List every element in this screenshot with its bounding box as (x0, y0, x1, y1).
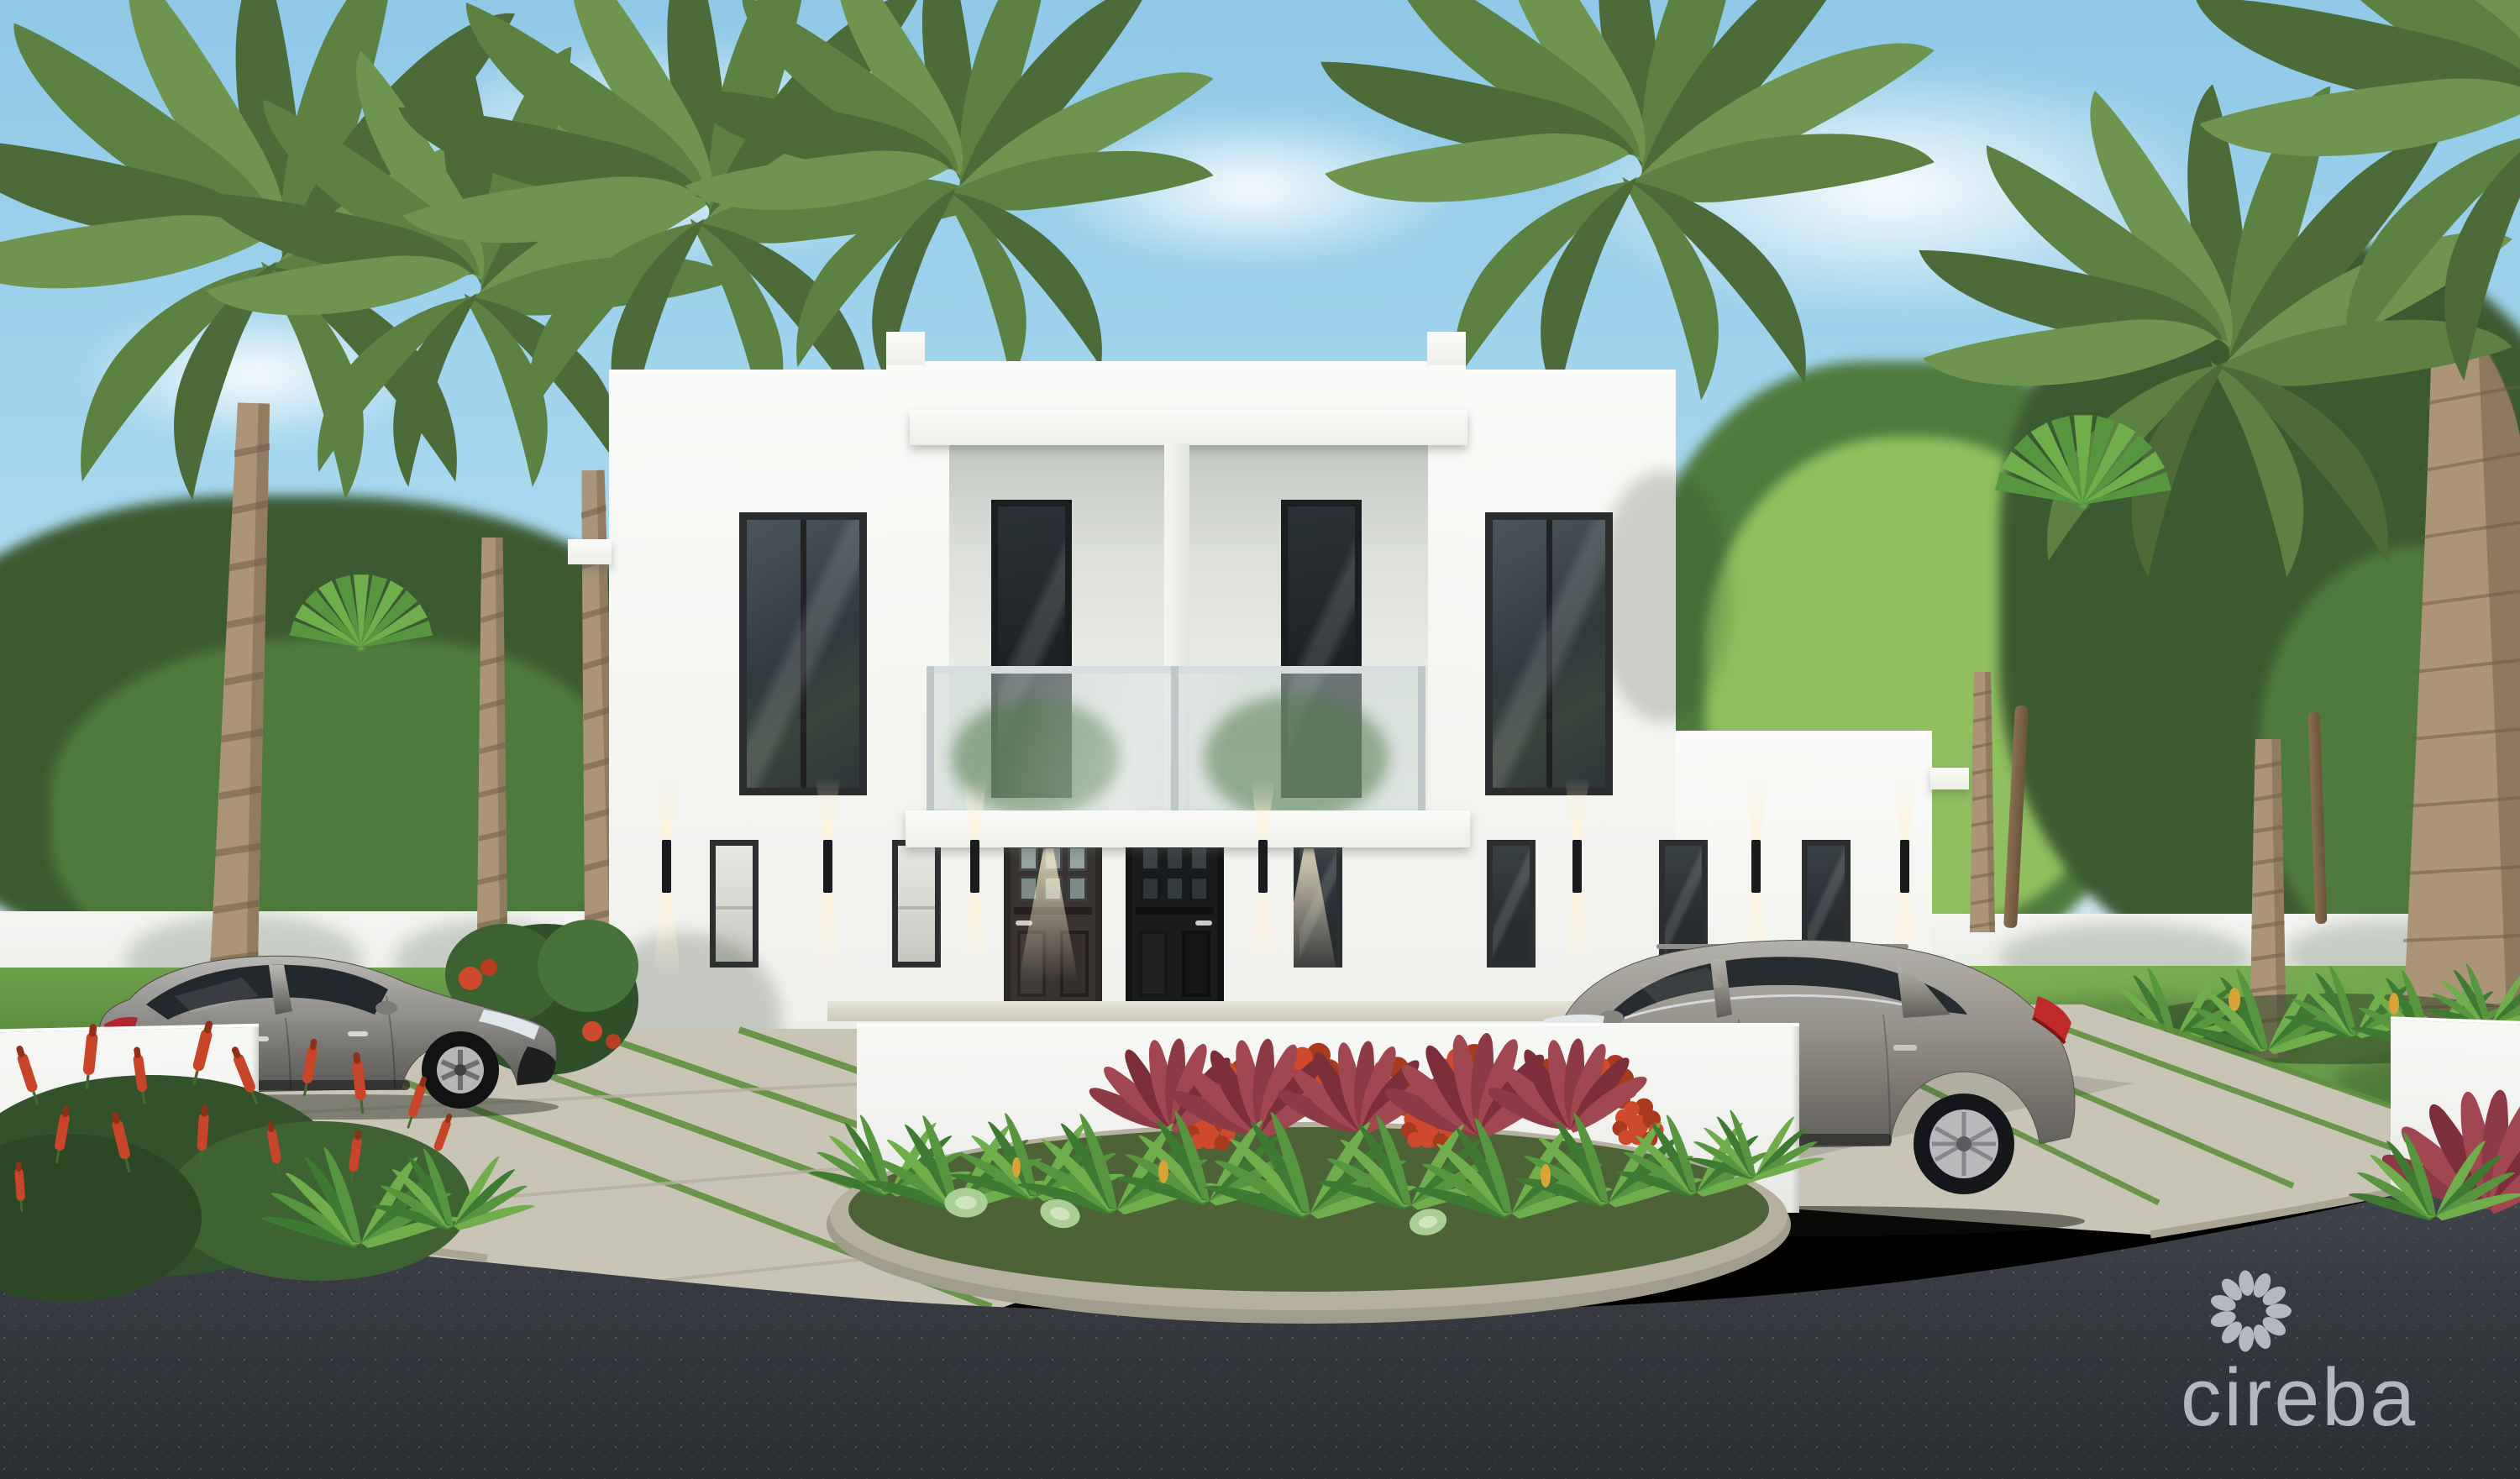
bottlebrush-bush (0, 1020, 535, 1302)
right-corner-plants (2349, 1088, 2520, 1243)
architectural-rendering-scene: cireba (0, 0, 2520, 1479)
cireba-logo petal-ring-icon (2206, 1265, 2295, 1354)
garden-island (809, 1032, 1824, 1324)
watermark-text: cireba (2181, 1351, 2418, 1445)
garden-layer (0, 0, 2520, 1479)
